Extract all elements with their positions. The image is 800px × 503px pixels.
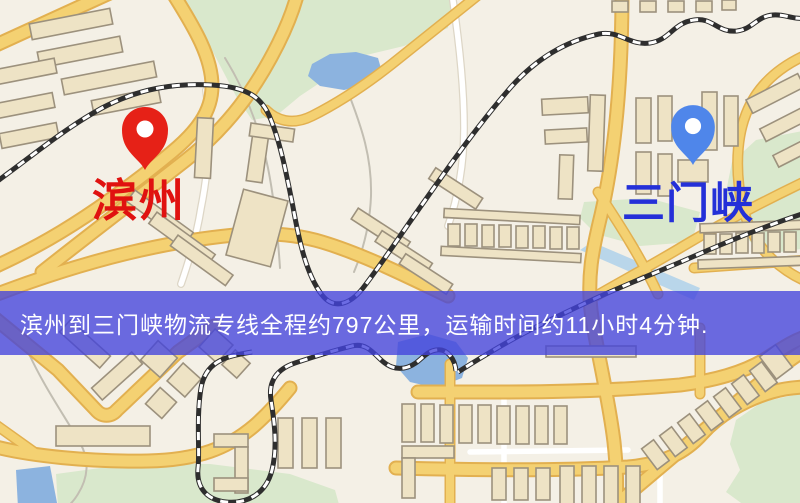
route-info-banner: 滨州到三门峡物流专线全程约797公里，运输时间约11小时4分钟. (0, 291, 800, 355)
origin-label: 滨州 (92, 175, 186, 226)
destination-pin-icon (671, 105, 715, 165)
destination-label: 三门峡 (622, 180, 754, 228)
map-graphic: 滨州 三门峡 (0, 0, 800, 503)
route-info-text: 滨州到三门峡物流专线全程约797公里，运输时间约11小时4分钟. (20, 306, 708, 340)
map-canvas: 滨州 三门峡 (0, 0, 800, 503)
